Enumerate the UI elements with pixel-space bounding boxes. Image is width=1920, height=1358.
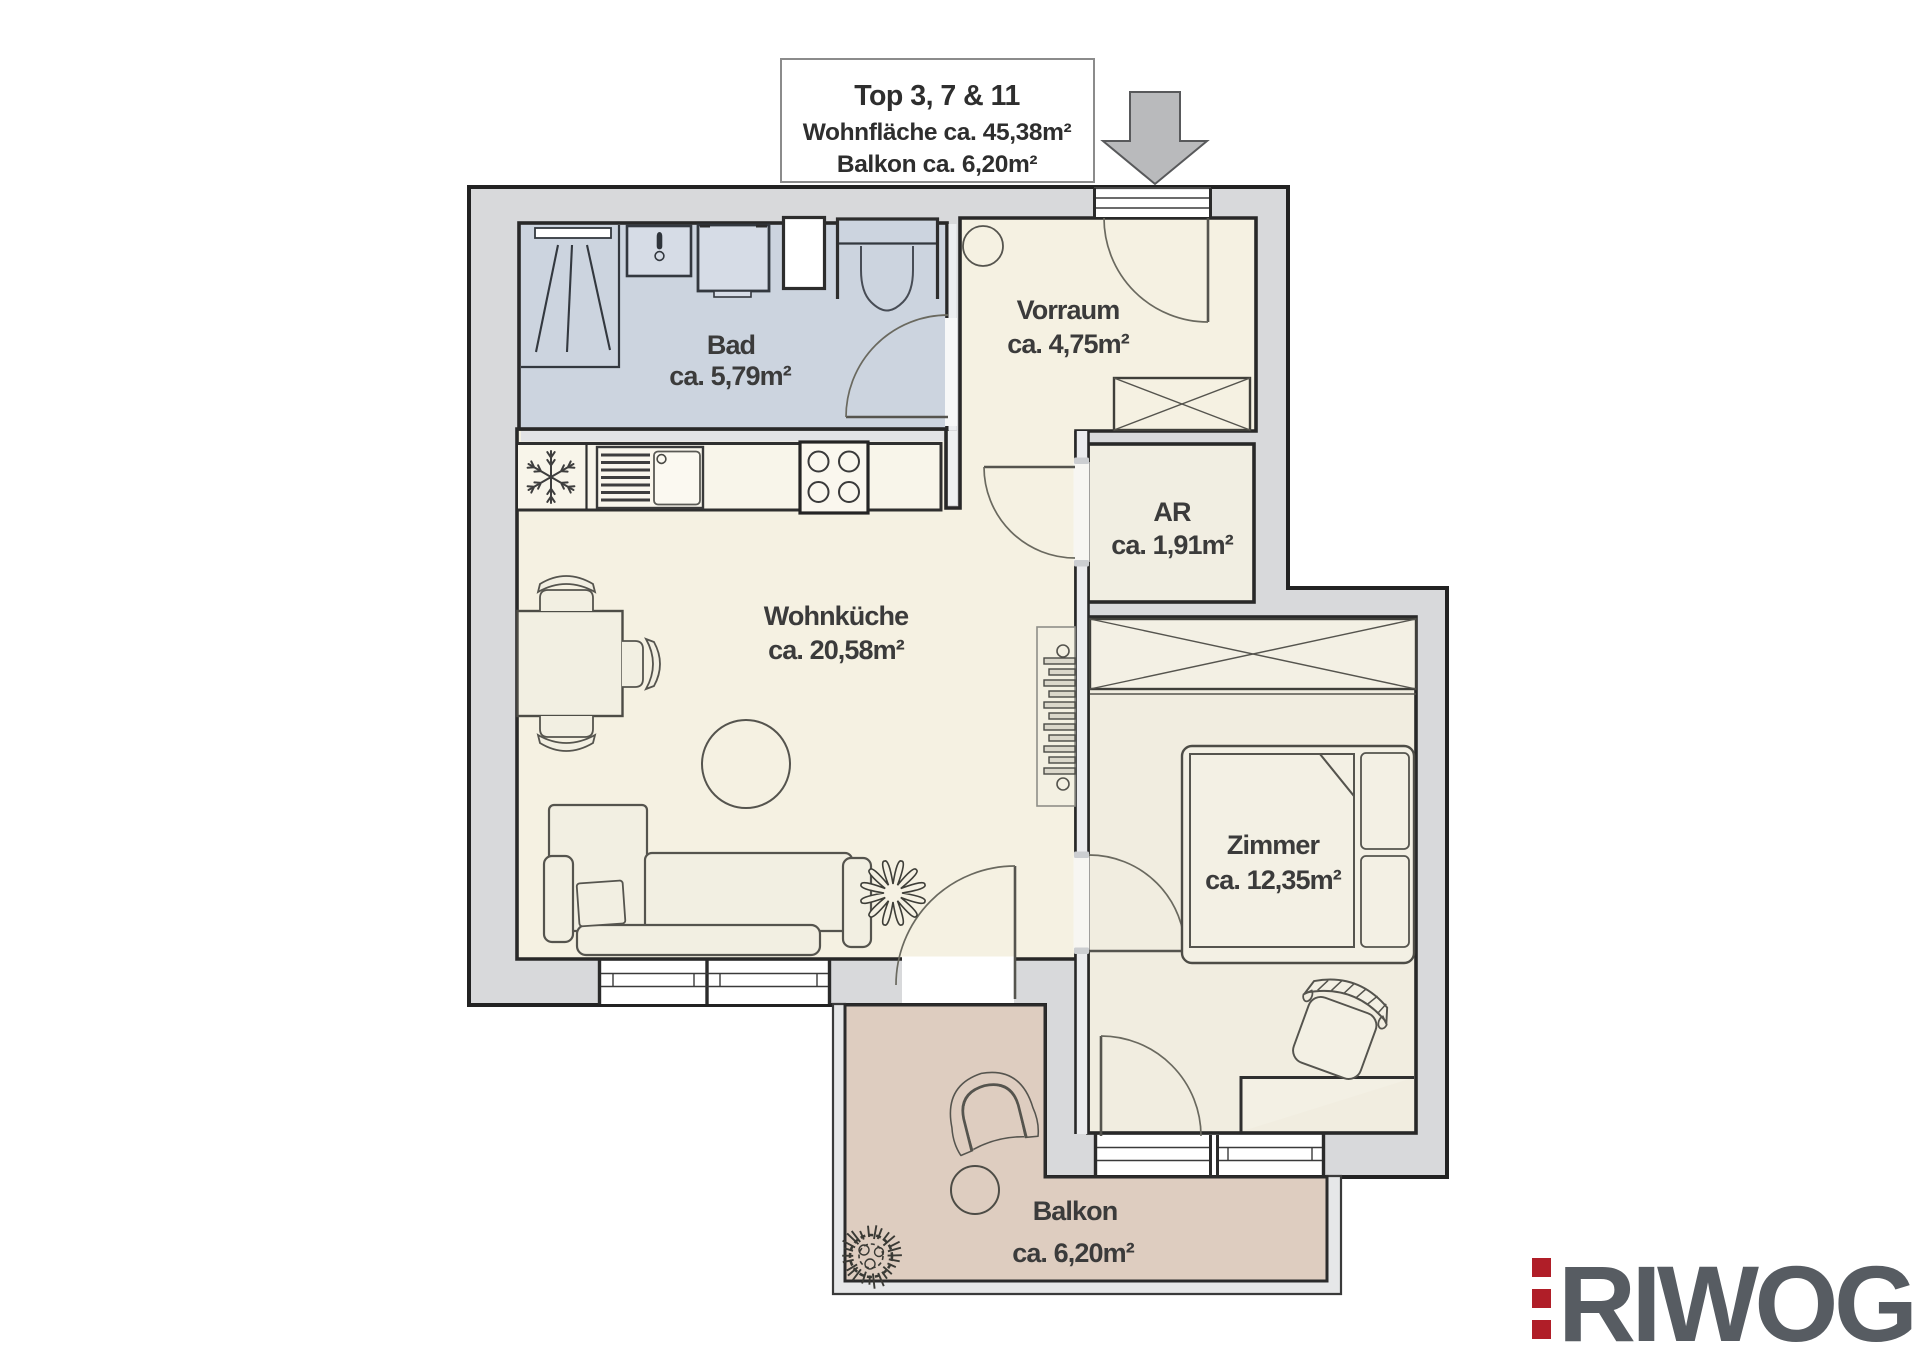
svg-text:Top 3, 7 & 11: Top 3, 7 & 11 <box>854 80 1020 112</box>
svg-text:ca. 4,75m²: ca. 4,75m² <box>1007 329 1129 359</box>
svg-text:Vorraum: Vorraum <box>1017 295 1120 325</box>
svg-text:ca. 6,20m²: ca. 6,20m² <box>1012 1238 1134 1268</box>
svg-text:AR: AR <box>1153 497 1191 527</box>
svg-text:Zimmer: Zimmer <box>1227 830 1321 860</box>
svg-text:ca. 5,79m²: ca. 5,79m² <box>669 361 791 391</box>
svg-text:ca. 12,35m²: ca. 12,35m² <box>1205 865 1342 895</box>
svg-text:Wohnfläche ca. 45,38m²: Wohnfläche ca. 45,38m² <box>803 119 1072 146</box>
svg-text:Balkon ca. 6,20m²: Balkon ca. 6,20m² <box>837 151 1037 178</box>
svg-text:Balkon: Balkon <box>1033 1196 1118 1226</box>
svg-text:Wohnküche: Wohnküche <box>764 601 909 631</box>
svg-text:Bad: Bad <box>707 330 755 360</box>
svg-text:ca. 20,58m²: ca. 20,58m² <box>768 635 905 665</box>
svg-text:RIWOG: RIWOG <box>1558 1243 1913 1358</box>
svg-text:ca. 1,91m²: ca. 1,91m² <box>1111 530 1233 560</box>
